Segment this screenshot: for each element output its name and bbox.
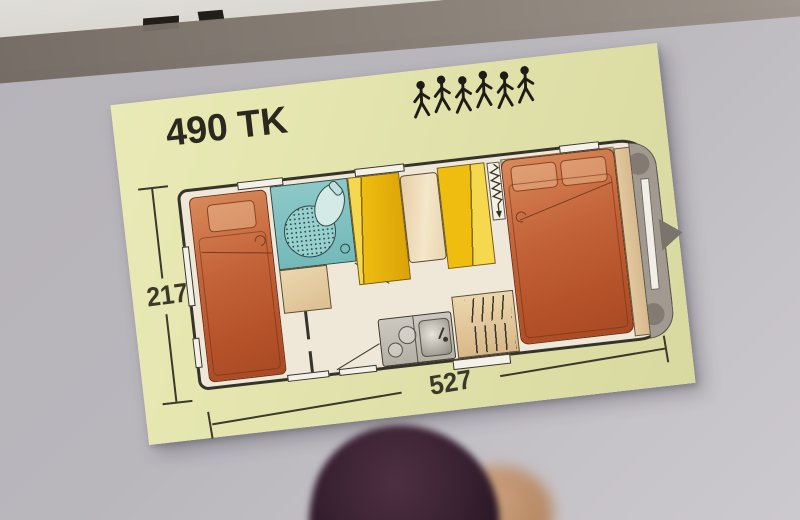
floorplan-sticker: 490 TK 217 527 (110, 43, 695, 445)
washroom (270, 178, 357, 270)
slatted-sideboard (451, 290, 520, 359)
pillow (206, 200, 257, 233)
window (192, 338, 202, 369)
drain-icon (340, 243, 351, 254)
dimension-line (151, 189, 163, 279)
person-icon (511, 63, 539, 107)
window (339, 365, 378, 376)
hob-burner-icon (387, 342, 404, 359)
slat-lines (466, 322, 517, 354)
double-bed (500, 148, 634, 346)
photo-scene: 490 TK 217 527 (0, 0, 800, 520)
hitch-icon (659, 216, 684, 250)
length-dimension-label: 527 (406, 361, 495, 406)
blanket-outline (508, 173, 629, 339)
dimension-cap (162, 400, 192, 406)
interior-wall (304, 311, 310, 339)
model-title: 490 TK (164, 101, 290, 153)
kitchen-unit (377, 311, 456, 367)
berth-capacity-icons (409, 63, 539, 119)
wardrobe-right (437, 162, 496, 269)
front-window (640, 178, 660, 290)
slat-lines (464, 294, 512, 324)
single-bed (188, 189, 287, 383)
thumb (296, 411, 514, 520)
lower-cabinet (279, 265, 332, 314)
front-corner (628, 152, 651, 176)
window (287, 370, 330, 382)
dimension-line (212, 392, 402, 426)
dimension-line (165, 314, 177, 402)
